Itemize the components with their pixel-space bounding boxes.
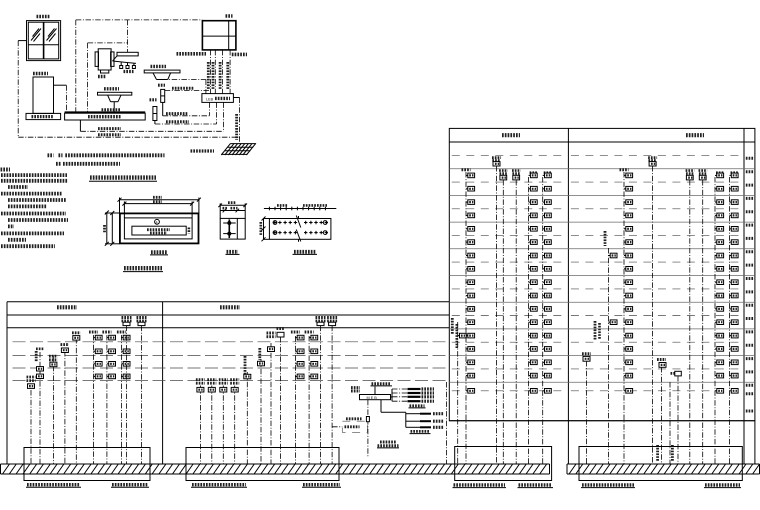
svg-text:LEB: LEB xyxy=(206,97,214,101)
svg-text:M E B: M E B xyxy=(367,396,378,400)
svg-text:4: 4 xyxy=(156,220,158,224)
